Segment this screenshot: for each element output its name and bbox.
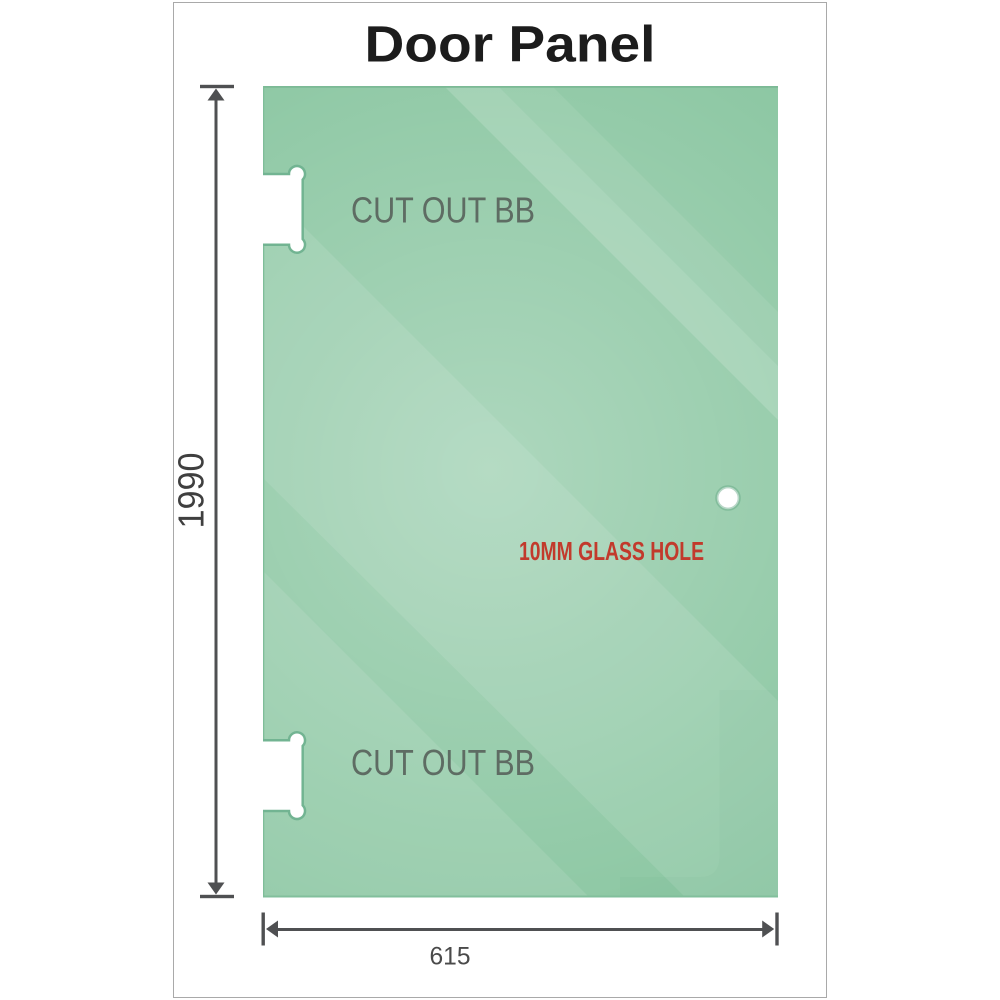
svg-text:10MM GLASS HOLE: 10MM GLASS HOLE bbox=[519, 536, 704, 566]
svg-text:CUT OUT BB: CUT OUT BB bbox=[351, 742, 535, 783]
svg-text:CUT OUT BB: CUT OUT BB bbox=[351, 190, 535, 231]
svg-text:Door Panel: Door Panel bbox=[365, 16, 656, 73]
svg-text:615: 615 bbox=[430, 943, 471, 971]
svg-text:1990: 1990 bbox=[171, 453, 212, 529]
